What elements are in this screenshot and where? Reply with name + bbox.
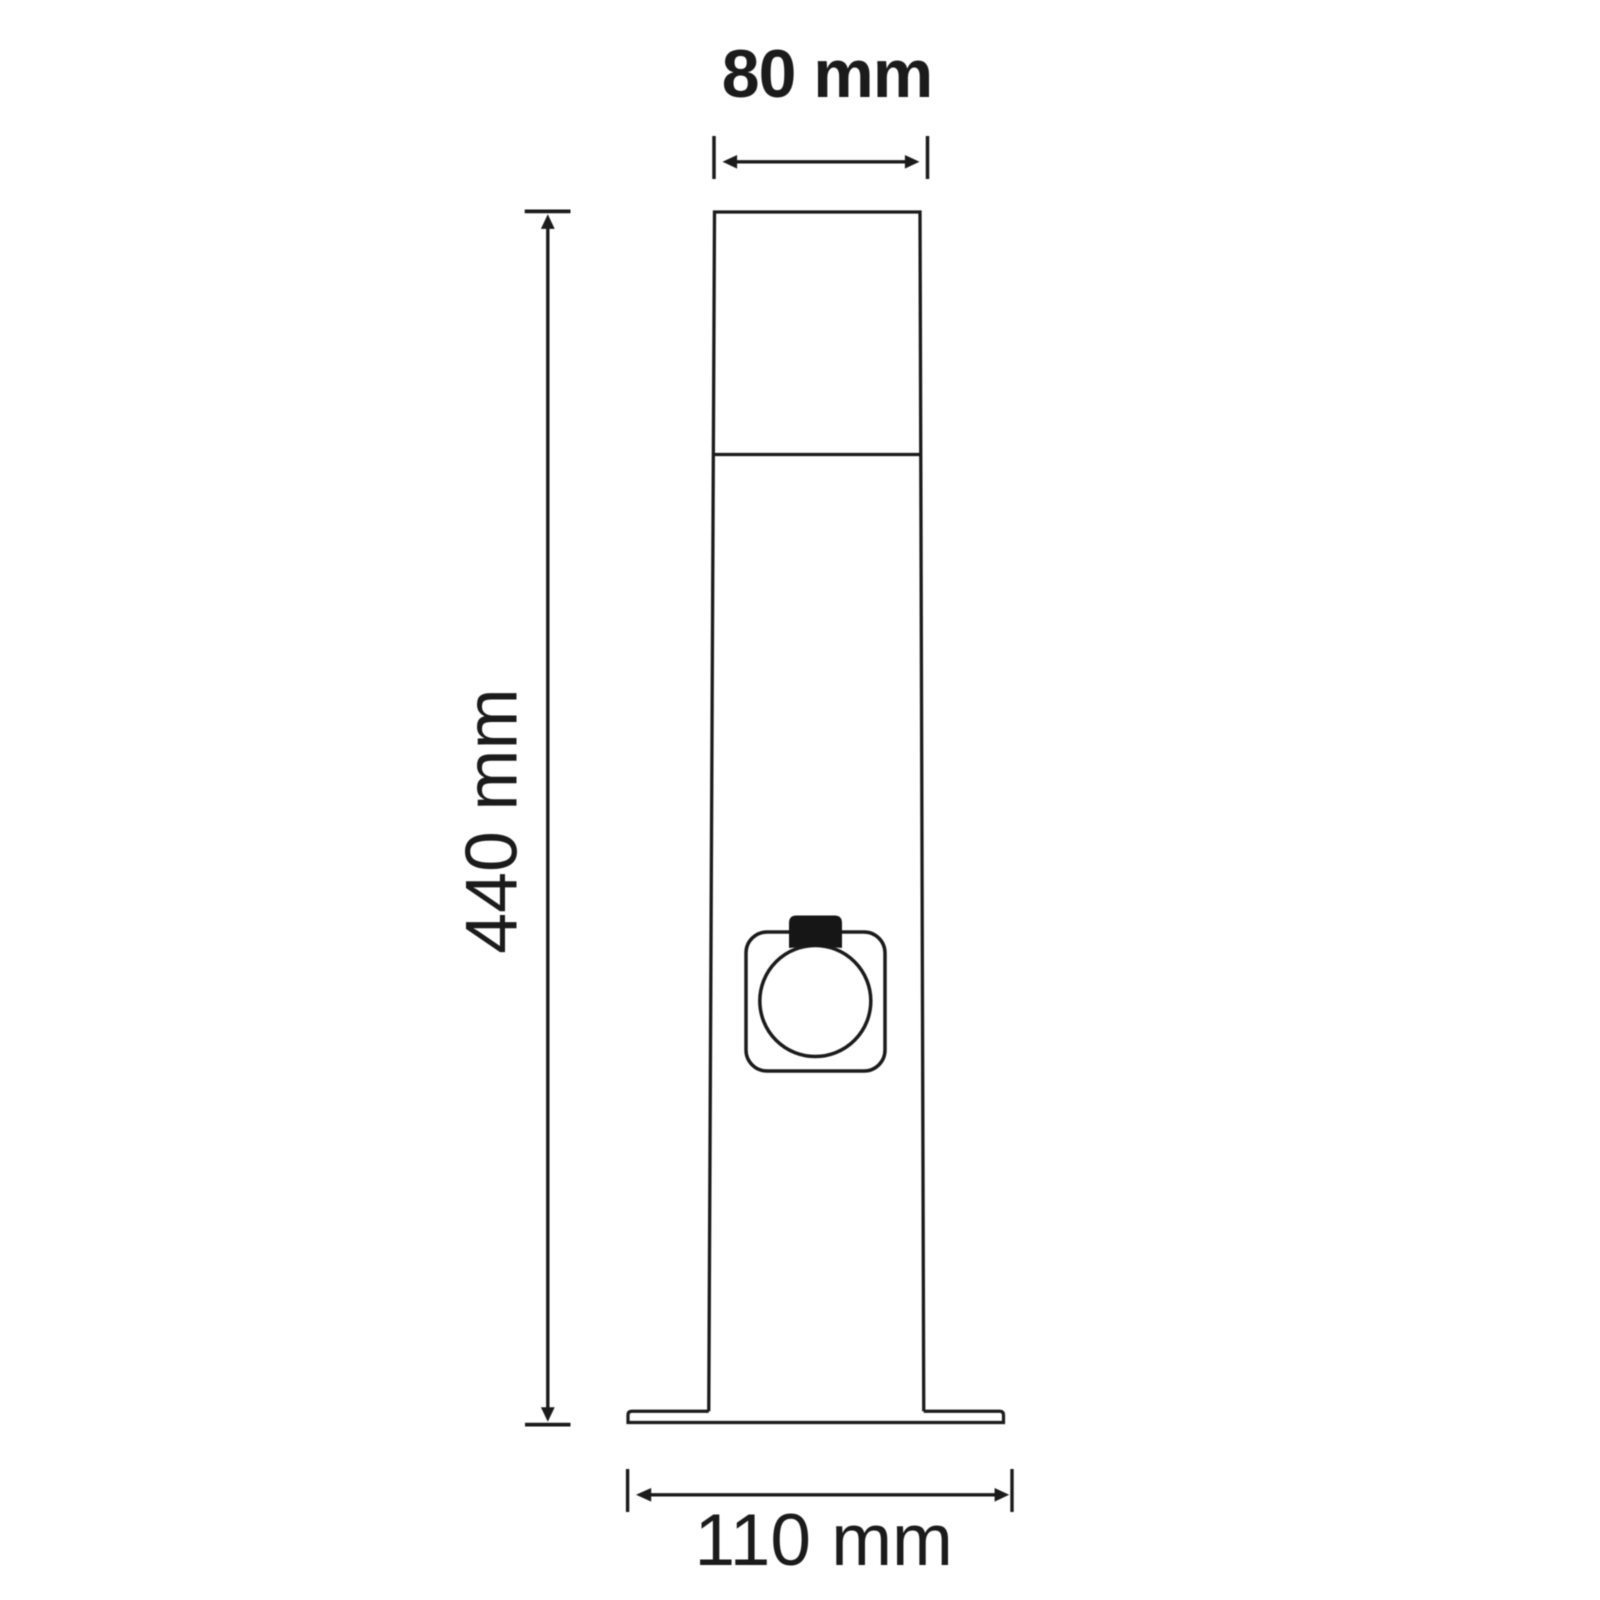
svg-text:80 mm: 80 mm	[722, 36, 932, 112]
svg-text:110 mm: 110 mm	[695, 1500, 953, 1581]
svg-text:440 mm: 440 mm	[450, 688, 533, 954]
